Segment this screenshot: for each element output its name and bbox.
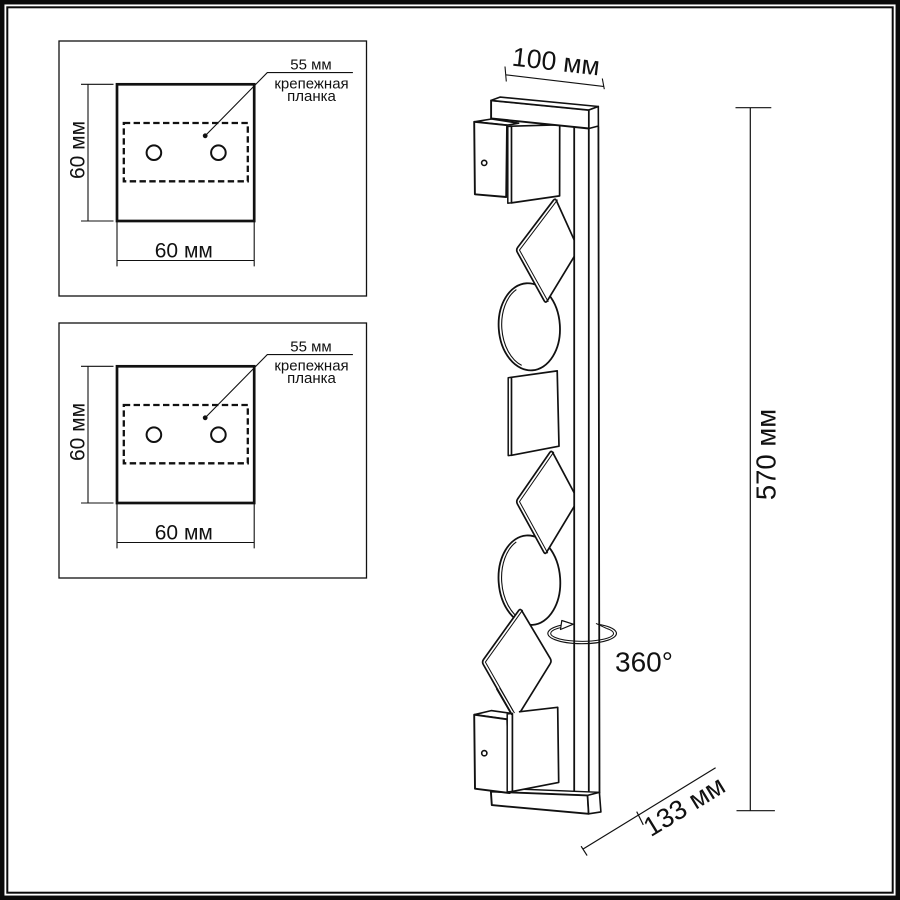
svg-text:планка: планка (287, 88, 336, 105)
svg-text:570 мм: 570 мм (751, 409, 782, 500)
svg-text:55 мм: 55 мм (290, 56, 331, 73)
svg-text:планка: планка (287, 370, 336, 387)
svg-text:60 мм: 60 мм (67, 121, 90, 179)
svg-text:360°: 360° (615, 647, 673, 678)
svg-text:60 мм: 60 мм (155, 522, 213, 545)
svg-text:60 мм: 60 мм (67, 403, 90, 461)
svg-text:55 мм: 55 мм (290, 338, 331, 355)
svg-text:60 мм: 60 мм (155, 240, 213, 263)
